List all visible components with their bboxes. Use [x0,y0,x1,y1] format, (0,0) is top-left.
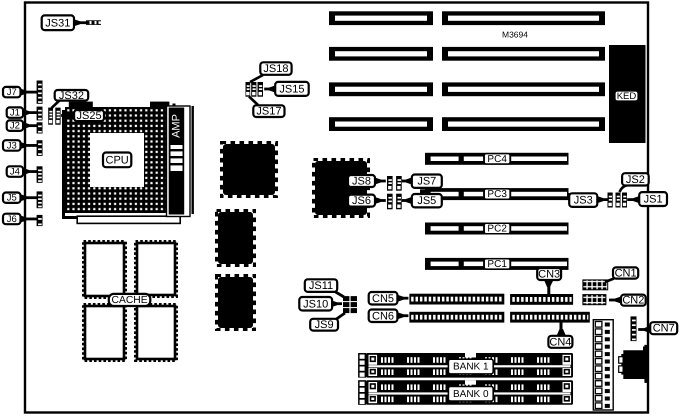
svg-text:PC3: PC3 [487,189,507,200]
svg-text:CN3: CN3 [538,269,560,281]
svg-text:JS17: JS17 [256,106,281,118]
svg-text:CN2: CN2 [622,295,644,307]
svg-text:JS25: JS25 [77,110,102,122]
svg-text:PC2: PC2 [487,224,507,235]
svg-text:JS5: JS5 [417,195,436,207]
svg-text:JS8: JS8 [352,176,371,188]
svg-text:BANK 1: BANK 1 [453,362,489,373]
svg-text:BANK 0: BANK 0 [453,389,489,400]
svg-text:JS31: JS31 [45,17,70,29]
svg-text:CN7: CN7 [653,323,675,335]
svg-text:JS32: JS32 [59,90,84,102]
svg-text:CN1: CN1 [615,268,637,280]
svg-text:JS7: JS7 [417,176,436,188]
svg-text:KED: KED [617,91,637,102]
svg-text:JS11: JS11 [309,280,333,292]
svg-text:JS9: JS9 [315,319,334,331]
svg-text:J3: J3 [7,140,17,151]
svg-text:JS1: JS1 [644,194,663,206]
svg-text:J1: J1 [10,108,20,119]
svg-text:J5: J5 [7,193,17,204]
svg-text:CN6: CN6 [372,310,394,322]
svg-text:J6: J6 [7,214,17,225]
svg-text:M3694: M3694 [502,30,528,40]
svg-text:CN5: CN5 [372,293,394,305]
svg-text:JS2: JS2 [626,174,645,186]
svg-text:CN4: CN4 [549,336,571,348]
svg-text:JS3: JS3 [574,195,593,207]
svg-text:JS15: JS15 [279,83,304,95]
svg-text:AMP: AMP [171,114,183,138]
svg-text:J7: J7 [7,87,17,98]
svg-text:CACHE: CACHE [112,295,148,306]
svg-text:PC4: PC4 [487,154,507,165]
svg-text:JS6: JS6 [352,195,371,207]
svg-text:J2: J2 [10,121,20,132]
svg-text:PC1: PC1 [487,259,507,270]
svg-text:JS18: JS18 [263,63,288,75]
svg-text:JS10: JS10 [303,298,328,310]
svg-text:CPU: CPU [106,154,129,166]
svg-text:J4: J4 [10,167,20,178]
